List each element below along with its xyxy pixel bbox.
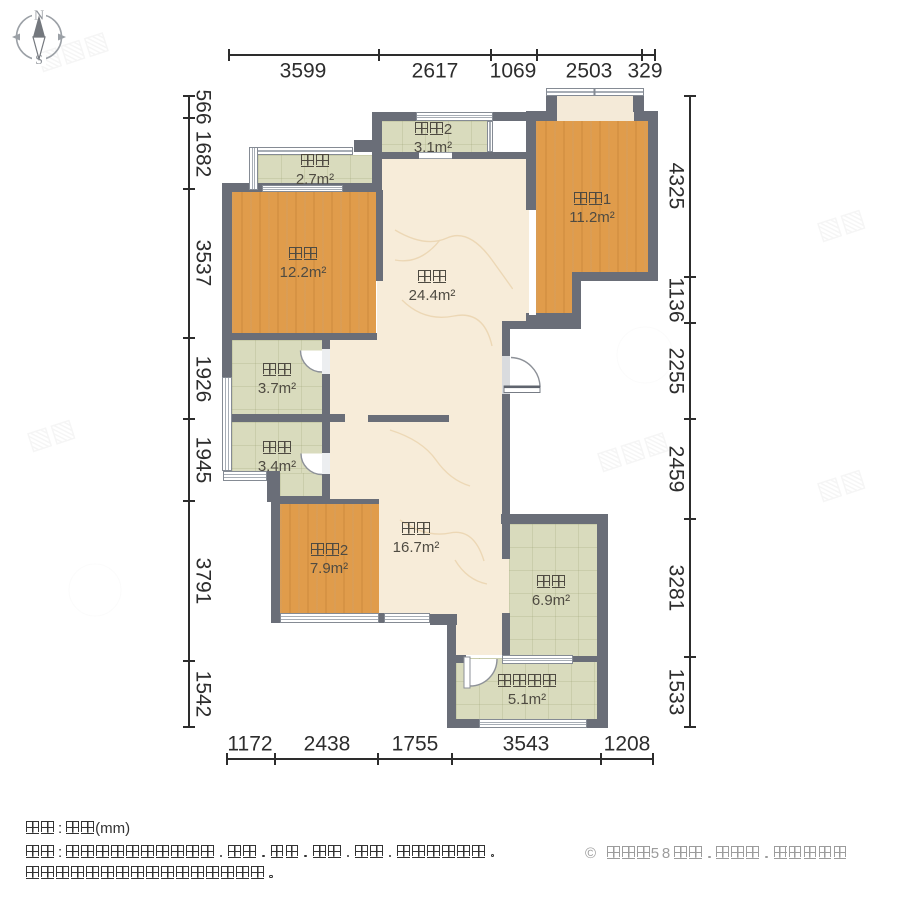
svg-text:▧▧▧: ▧▧▧ [593, 424, 672, 475]
svg-text:▧▧: ▧▧ [813, 462, 869, 506]
svg-text:▧▧: ▧▧ [23, 412, 79, 456]
svg-text:▧▧▧: ▧▧▧ [33, 24, 112, 75]
svg-text:▧▧: ▧▧ [813, 202, 869, 246]
